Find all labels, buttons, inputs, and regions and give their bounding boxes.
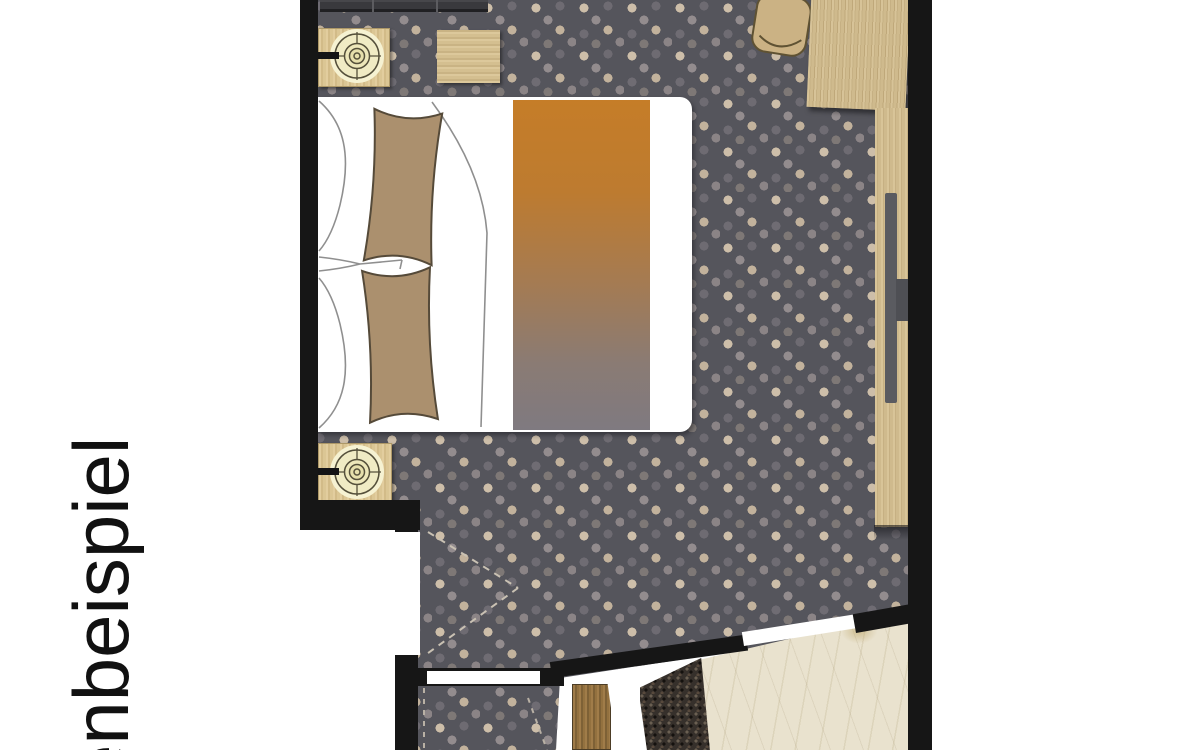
bedside-stool xyxy=(437,30,500,83)
bed-runner xyxy=(513,100,650,430)
right-wall xyxy=(908,0,932,750)
reading-light-switch xyxy=(315,468,339,475)
sideboard-top-edge xyxy=(320,0,488,12)
floor-plan: enbeispiel xyxy=(0,0,1200,750)
reading-light-switch xyxy=(315,52,339,59)
console-shadow xyxy=(874,525,908,540)
left-wall xyxy=(300,0,318,530)
pillow xyxy=(362,267,438,422)
pillow xyxy=(364,109,442,265)
room-label: enbeispiel xyxy=(58,318,144,750)
sideboard-divider xyxy=(436,0,438,12)
sideboard-divider xyxy=(372,0,374,12)
door-swing-overlay xyxy=(390,520,690,750)
desk-chair xyxy=(746,0,818,67)
tv-mount xyxy=(896,279,908,321)
desk xyxy=(806,0,910,111)
